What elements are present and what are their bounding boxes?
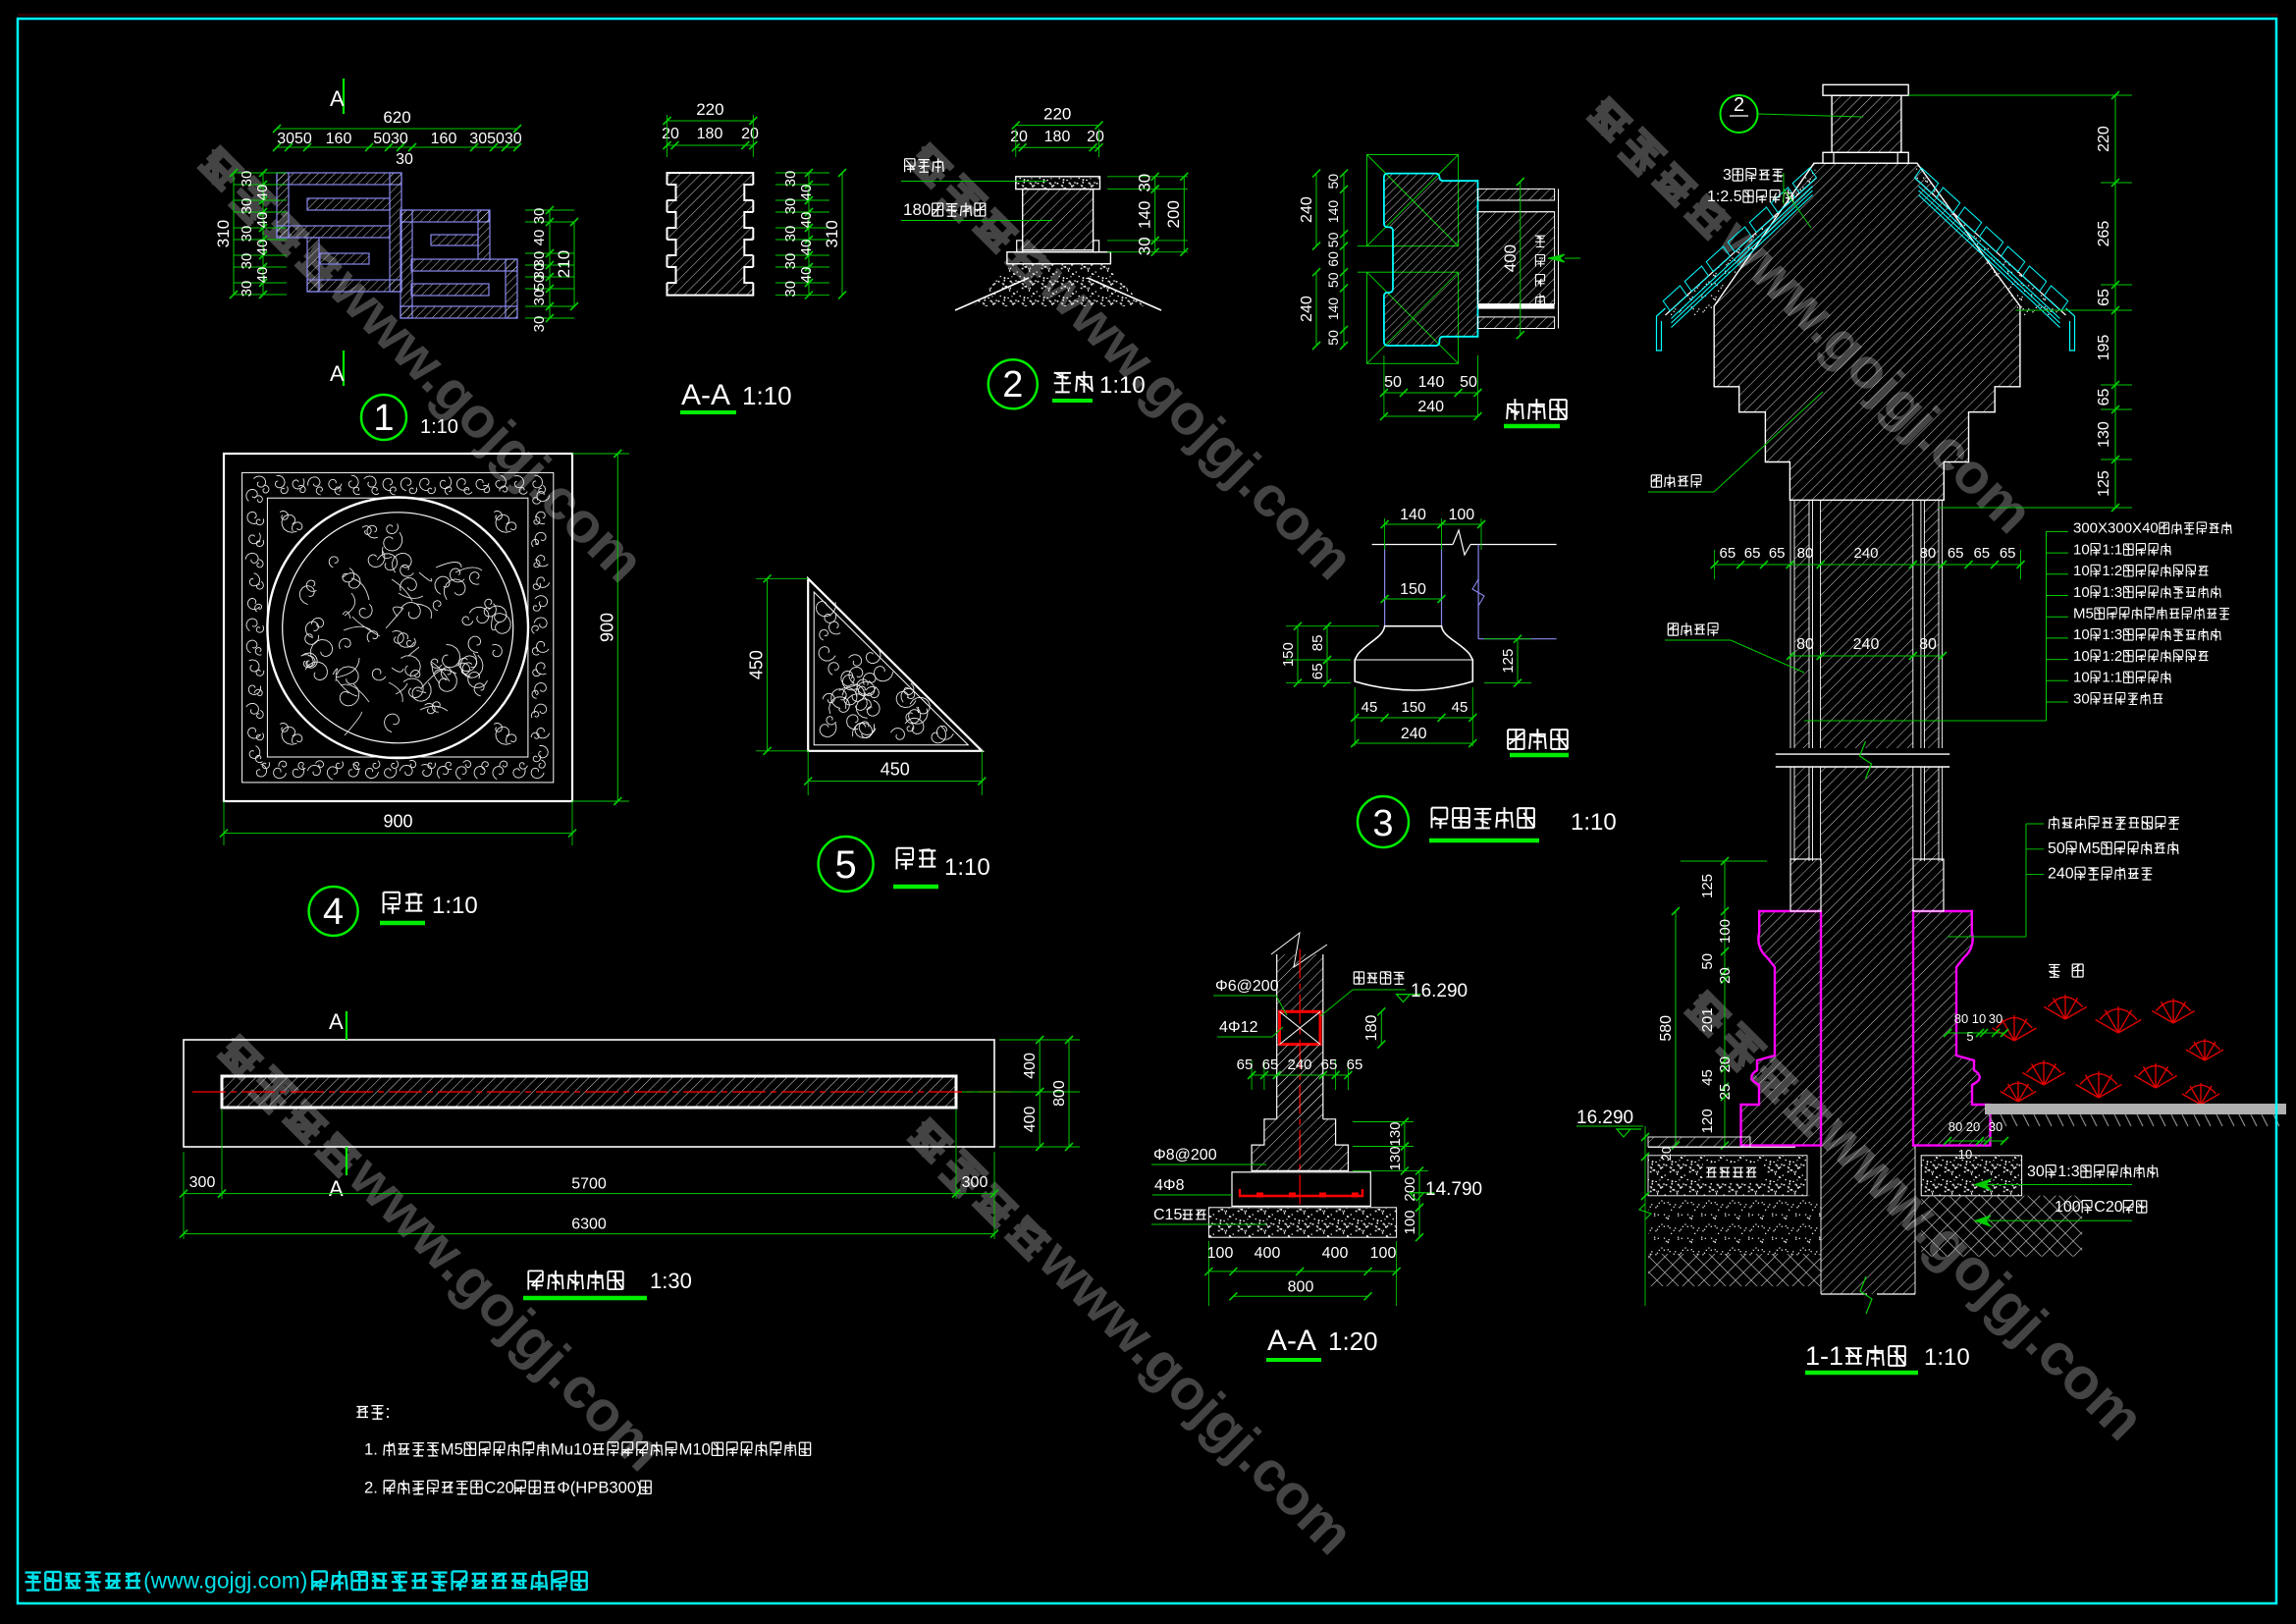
svg-text:900: 900 (597, 613, 616, 642)
svg-text:150: 150 (1280, 642, 1297, 667)
svg-text:M5: M5 (2073, 606, 2094, 623)
svg-text:265: 265 (2096, 221, 2112, 247)
svg-text:400: 400 (1322, 1245, 1349, 1262)
svg-text:Mu10: Mu10 (551, 1439, 592, 1458)
svg-text:180: 180 (1363, 1015, 1380, 1042)
svg-text:30: 30 (782, 253, 799, 270)
svg-text:80: 80 (1919, 636, 1937, 653)
svg-text:C20: C20 (484, 1478, 513, 1496)
svg-text:40: 40 (798, 267, 815, 284)
svg-text:125: 125 (1500, 649, 1517, 674)
svg-text:220: 220 (2096, 126, 2112, 152)
svg-text:240: 240 (2048, 866, 2074, 883)
svg-text:4: 4 (323, 892, 344, 933)
svg-text:20: 20 (1966, 1119, 1980, 1134)
svg-text:10: 10 (2073, 563, 2090, 579)
svg-text:140: 140 (1418, 374, 1445, 391)
svg-text:100: 100 (1717, 919, 1734, 944)
svg-text:3: 3 (1372, 803, 1393, 844)
svg-text:100: 100 (2055, 1199, 2081, 1216)
svg-text:4Φ8: 4Φ8 (1154, 1177, 1185, 1194)
svg-text:Φ(HPB300): Φ(HPB300) (558, 1478, 642, 1496)
svg-text:30: 30 (239, 198, 255, 215)
svg-text:1:3: 1:3 (2102, 584, 2122, 601)
svg-text:3050: 3050 (277, 131, 312, 147)
svg-text:240: 240 (1287, 1056, 1311, 1073)
svg-text:85: 85 (1309, 635, 1326, 652)
svg-text:40: 40 (531, 230, 548, 246)
svg-text:310: 310 (214, 220, 233, 247)
svg-text:160: 160 (431, 131, 457, 147)
svg-text:10: 10 (2073, 541, 2090, 558)
svg-text:5700: 5700 (571, 1176, 607, 1193)
svg-text:50: 50 (1325, 232, 1341, 247)
svg-text:40: 40 (254, 267, 271, 284)
svg-text:16.290: 16.290 (1576, 1108, 1633, 1128)
svg-text:5030: 5030 (373, 131, 408, 147)
svg-text:16.290: 16.290 (1411, 981, 1468, 1001)
svg-text:620: 620 (383, 108, 410, 127)
svg-text:M5: M5 (441, 1439, 463, 1458)
svg-text:30: 30 (531, 290, 548, 306)
svg-text:240: 240 (1853, 636, 1880, 653)
svg-text:130: 130 (1387, 1121, 1404, 1146)
svg-text:1:3: 1:3 (2057, 1164, 2079, 1180)
svg-text:1:10: 1:10 (420, 416, 458, 438)
svg-text:A: A (329, 1009, 344, 1034)
svg-text:20: 20 (1087, 129, 1104, 145)
svg-text::: : (386, 1402, 391, 1422)
svg-text:5: 5 (834, 843, 856, 887)
svg-text:30: 30 (531, 316, 548, 333)
svg-text:1:3: 1:3 (2102, 626, 2122, 643)
svg-text:30: 30 (396, 151, 413, 168)
svg-text:20: 20 (662, 126, 679, 142)
svg-text:1:30: 1:30 (650, 1269, 692, 1293)
svg-text:800: 800 (1288, 1278, 1314, 1295)
svg-text:160: 160 (326, 131, 352, 147)
svg-text:65: 65 (1720, 545, 1736, 562)
svg-text:65: 65 (1237, 1056, 1254, 1073)
svg-text:220: 220 (696, 100, 723, 119)
svg-text:65: 65 (1321, 1056, 1338, 1073)
svg-text:2.: 2. (364, 1478, 378, 1496)
svg-text:40: 40 (254, 185, 271, 201)
svg-text:310: 310 (823, 220, 841, 247)
svg-text:80: 80 (1949, 1119, 1962, 1134)
svg-text:65: 65 (2000, 545, 2016, 562)
svg-text:1:1: 1:1 (2102, 541, 2122, 558)
svg-text:140: 140 (1400, 507, 1426, 523)
svg-text:1.: 1. (364, 1439, 378, 1458)
svg-text:65: 65 (2096, 389, 2112, 406)
svg-text:180: 180 (1044, 129, 1071, 145)
svg-text:240: 240 (1401, 726, 1427, 742)
svg-text:45: 45 (1452, 699, 1468, 716)
svg-text:30: 30 (782, 171, 799, 188)
svg-text:A: A (329, 1176, 344, 1201)
svg-text:195: 195 (2096, 335, 2112, 361)
svg-text:100: 100 (1448, 507, 1474, 523)
svg-text:580: 580 (1658, 1015, 1675, 1042)
svg-text:30: 30 (782, 281, 799, 298)
svg-text:180: 180 (697, 126, 723, 142)
svg-text:1:10: 1:10 (944, 854, 990, 881)
svg-text:900: 900 (383, 812, 412, 832)
svg-text:120: 120 (1699, 1109, 1716, 1133)
svg-text:1-1: 1-1 (1805, 1341, 1843, 1371)
svg-text:240: 240 (1299, 196, 1315, 223)
svg-text:150: 150 (1401, 699, 1425, 716)
svg-text:20: 20 (1717, 967, 1734, 984)
svg-text:M5: M5 (2078, 840, 2100, 857)
svg-text:100: 100 (1207, 1245, 1234, 1262)
svg-text:10: 10 (2073, 626, 2090, 643)
svg-text:2: 2 (1734, 94, 1744, 116)
svg-text:40: 40 (254, 240, 271, 256)
svg-text:C15: C15 (1153, 1207, 1182, 1223)
svg-text:80: 80 (1797, 545, 1814, 562)
svg-text:1:10: 1:10 (1099, 372, 1146, 399)
svg-text:125: 125 (1699, 874, 1716, 898)
svg-text:5: 5 (1966, 1029, 1973, 1044)
svg-text:10: 10 (1972, 1011, 1986, 1026)
svg-text:Φ8@200: Φ8@200 (1153, 1147, 1217, 1164)
svg-text:1:2: 1:2 (2102, 563, 2122, 579)
svg-text:C20: C20 (2094, 1199, 2122, 1216)
svg-text:130: 130 (1387, 1146, 1404, 1170)
svg-text:65: 65 (1948, 545, 1964, 562)
svg-text:1:20: 1:20 (1328, 1326, 1378, 1356)
svg-text:50: 50 (1325, 330, 1341, 346)
svg-text:80: 80 (1920, 545, 1937, 562)
svg-text:50: 50 (1384, 374, 1402, 391)
svg-text:2: 2 (1002, 364, 1023, 406)
svg-text:20: 20 (1010, 129, 1028, 145)
svg-text:65: 65 (1262, 1056, 1279, 1073)
svg-text:200: 200 (1164, 200, 1183, 228)
svg-text:1:2.5: 1:2.5 (1707, 189, 1742, 205)
svg-text:M10: M10 (679, 1439, 711, 1458)
svg-text:30: 30 (239, 226, 255, 243)
svg-text:300: 300 (962, 1174, 988, 1191)
svg-text:65: 65 (2096, 289, 2112, 306)
svg-text:450: 450 (747, 650, 767, 679)
svg-text:40: 40 (254, 212, 271, 229)
svg-text:25: 25 (1717, 1084, 1734, 1101)
svg-text:30: 30 (782, 226, 799, 243)
svg-text:A: A (330, 361, 345, 386)
svg-text:140: 140 (1136, 201, 1154, 229)
svg-text:450: 450 (881, 760, 910, 780)
svg-text:(www.gojgj.com): (www.gojgj.com) (143, 1568, 307, 1594)
svg-text:50: 50 (1325, 174, 1341, 189)
svg-text:20: 20 (741, 126, 759, 142)
svg-text:1:2: 1:2 (2102, 648, 2122, 665)
svg-text:30: 30 (1989, 1119, 2002, 1134)
svg-text:A-A: A-A (681, 379, 730, 411)
svg-text:1: 1 (373, 398, 394, 439)
svg-text:220: 220 (1043, 105, 1071, 124)
svg-text:80: 80 (1954, 1011, 1968, 1026)
svg-text:200: 200 (1402, 1177, 1418, 1202)
svg-text:10: 10 (2073, 648, 2090, 665)
svg-text:240: 240 (1853, 545, 1878, 562)
svg-text:100: 100 (1370, 1245, 1397, 1262)
svg-text:50: 50 (1699, 953, 1716, 970)
svg-text:300X300X40: 300X300X40 (2073, 520, 2159, 537)
svg-text:65: 65 (1973, 545, 1990, 562)
svg-text:300: 300 (189, 1174, 216, 1191)
svg-text:400: 400 (1255, 1245, 1281, 1262)
svg-text:800: 800 (1051, 1080, 1068, 1107)
svg-text:Φ6@200: Φ6@200 (1215, 978, 1279, 995)
svg-text:45: 45 (1362, 699, 1378, 716)
svg-text:240: 240 (1417, 399, 1444, 415)
svg-text:20: 20 (1717, 1056, 1734, 1073)
svg-text:201: 201 (1699, 1007, 1716, 1032)
svg-text:14.790: 14.790 (1425, 1179, 1482, 1200)
svg-text:A: A (330, 86, 345, 111)
svg-text:50: 50 (2048, 840, 2065, 857)
svg-text:1:1: 1:1 (2102, 670, 2122, 686)
svg-text:30: 30 (239, 281, 255, 298)
svg-text:150: 150 (1400, 581, 1426, 598)
svg-text:80: 80 (1796, 636, 1814, 653)
svg-text:45: 45 (1699, 1069, 1716, 1086)
svg-text:400: 400 (1022, 1053, 1039, 1079)
svg-text:210: 210 (555, 250, 573, 278)
svg-text:10: 10 (2073, 670, 2090, 686)
svg-text:50: 50 (1325, 272, 1341, 288)
svg-text:240: 240 (1299, 296, 1315, 322)
svg-text:30: 30 (2027, 1164, 2045, 1180)
svg-text:20: 20 (1659, 1147, 1674, 1161)
svg-text:60: 60 (1325, 251, 1341, 267)
svg-text:1:10: 1:10 (742, 381, 792, 410)
svg-text:130: 130 (2096, 421, 2112, 448)
svg-text:65: 65 (1744, 545, 1761, 562)
svg-text:1:10: 1:10 (1924, 1344, 1970, 1371)
svg-text:30: 30 (239, 253, 255, 270)
svg-text:65: 65 (1769, 545, 1786, 562)
svg-text:30: 30 (1989, 1011, 2002, 1026)
svg-text:400: 400 (1022, 1107, 1039, 1133)
svg-text:30: 30 (782, 198, 799, 215)
svg-text:125: 125 (2096, 470, 2112, 497)
svg-text:30: 30 (531, 208, 548, 225)
svg-text:100: 100 (1402, 1210, 1418, 1234)
svg-text:180: 180 (903, 200, 931, 219)
svg-text:50: 50 (1460, 374, 1477, 391)
svg-text:305030: 305030 (469, 131, 521, 147)
svg-text:30: 30 (1136, 174, 1154, 192)
svg-text:140: 140 (1325, 298, 1341, 321)
svg-text:40: 40 (798, 240, 815, 256)
svg-text:10: 10 (2073, 584, 2090, 601)
svg-text:40: 40 (798, 185, 815, 201)
svg-text:65: 65 (1309, 663, 1326, 679)
svg-text:4Φ12: 4Φ12 (1219, 1019, 1258, 1036)
svg-text:140: 140 (1325, 200, 1341, 224)
svg-text:50: 50 (531, 275, 548, 292)
svg-text:3: 3 (1723, 167, 1732, 184)
svg-text:40: 40 (798, 212, 815, 229)
svg-text:30: 30 (2073, 690, 2090, 707)
svg-text:30: 30 (1136, 237, 1154, 255)
svg-text:1:10: 1:10 (1571, 809, 1617, 836)
svg-text:65: 65 (1347, 1056, 1363, 1073)
svg-text:1:10: 1:10 (432, 893, 478, 919)
svg-text:400: 400 (1501, 244, 1520, 272)
svg-text:30: 30 (239, 171, 255, 188)
svg-text:6300: 6300 (571, 1217, 607, 1233)
svg-text:A-A: A-A (1267, 1325, 1316, 1357)
